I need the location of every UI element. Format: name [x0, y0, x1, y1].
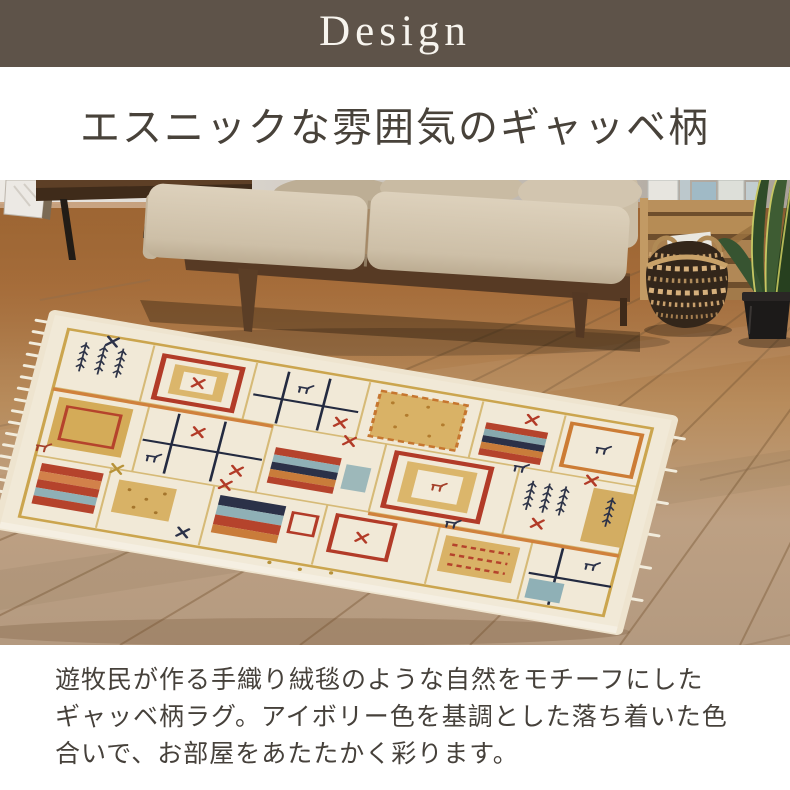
section-heading: エスニックな雰囲気のギャッベ柄: [80, 95, 710, 153]
description-block: 遊牧民が作る手織り絨毯のような自然をモチーフにした ギャッベ柄ラグ。アイボリー色…: [0, 645, 790, 790]
description-line: 遊牧民が作る手織り絨毯のような自然をモチーフにした: [55, 662, 760, 699]
banner-title: Design: [319, 10, 471, 57]
living-room-photo: [0, 180, 790, 645]
description-line: ギャッベ柄ラグ。アイボリー色を基調とした落ち着いた色: [55, 699, 760, 736]
product-design-section: Design エスニックな雰囲気のギャッベ柄: [0, 0, 790, 790]
heading-area: エスニックな雰囲気のギャッベ柄: [0, 67, 790, 180]
design-banner: Design: [0, 0, 790, 67]
living-room-photo-canvas: [0, 180, 790, 645]
description-line: 合いで、お部屋をあたたかく彩ります。: [55, 736, 760, 773]
